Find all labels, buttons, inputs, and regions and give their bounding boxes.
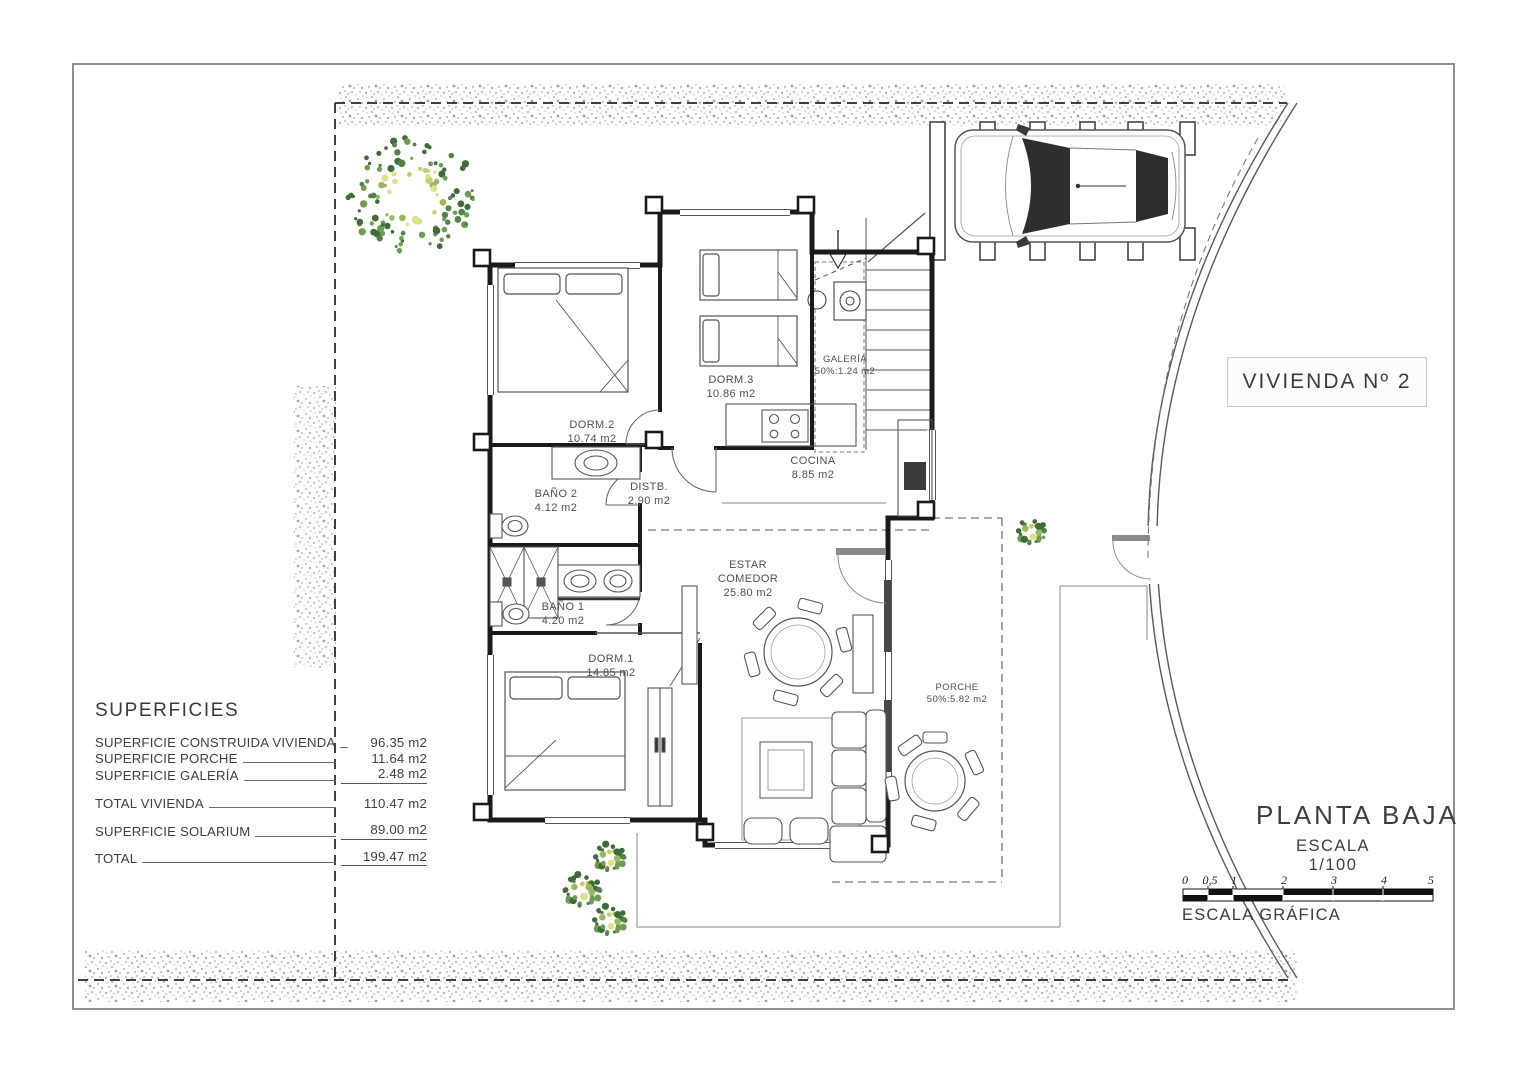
superficies-value: 199.47 m2 <box>341 849 427 867</box>
vivienda-title: VIVIENDA Nº 2 <box>1242 370 1411 394</box>
superficies-row: SUPERFICIE SOLARIUM 89.00 m2 <box>95 822 427 840</box>
room-label-distb-area: 2.90 m2 <box>628 495 671 507</box>
room-label-dorm3-area: 10.86 m2 <box>706 388 755 400</box>
superficies-label: SUPERFICIE GALERÍA <box>95 768 239 784</box>
room-label-dorm1-name: DORM.1 <box>588 653 633 665</box>
room-label-dorm1-area: 14.85 m2 <box>586 667 635 679</box>
superficies-label: SUPERFICIE CONSTRUIDA VIVIENDA <box>95 735 335 751</box>
room-label-estar-area: 25.80 m2 <box>723 587 772 599</box>
vivienda-title-box: VIVIENDA Nº 2 <box>1227 357 1427 407</box>
superficies-value: 11.64 m2 <box>341 751 427 767</box>
gate-opening <box>1133 526 1165 584</box>
dining-table-icon <box>744 598 853 707</box>
superficies-row: SUPERFICIE CONSTRUIDA VIVIENDA 96.35 m2 <box>95 735 427 751</box>
bush-icon <box>593 841 626 873</box>
beds-dorm3 <box>700 250 797 366</box>
scale-tick-3: 3 <box>1330 873 1337 887</box>
leader-line <box>209 807 336 808</box>
kitchen-sink-icon <box>904 462 926 490</box>
wardrobe-dorm1 <box>648 688 672 806</box>
room-label-cocina-name: COCINA <box>790 455 835 467</box>
car-icon <box>955 124 1185 248</box>
leader-line <box>340 747 348 748</box>
superficies-row: SUPERFICIE GALERÍA 2.48 m2 <box>95 766 427 784</box>
superficies-row: SUPERFICIE PORCHE 11.64 m2 <box>95 751 427 767</box>
entry-door <box>836 548 886 603</box>
room-label-bano1-area: 4.20 m2 <box>542 615 585 627</box>
room-label-estar-line1: ESTAR <box>729 559 767 571</box>
tree-icon <box>346 135 475 253</box>
hedge-left <box>294 386 336 668</box>
room-labels: DORM.2 10.74 m2 DORM.3 10.86 m2 GALERÍA … <box>535 354 988 705</box>
room-label-cocina-area: 8.85 m2 <box>792 469 835 481</box>
room-label-dorm3-name: DORM.3 <box>708 374 753 386</box>
superficies-row: TOTAL VIVIENDA 110.47 m2 <box>95 796 427 812</box>
bed-dorm2 <box>498 268 628 392</box>
room-label-galeria-name: GALERÍA <box>823 354 867 365</box>
porch-table-icon <box>885 732 985 831</box>
superficies-row: TOTAL 199.47 m2 <box>95 849 427 867</box>
bush-icon <box>562 871 602 908</box>
superficies-value: 110.47 m2 <box>341 796 427 812</box>
scale-tick-2: 2 <box>1281 873 1287 887</box>
superficies-label: SUPERFICIE PORCHE <box>95 751 238 767</box>
room-label-estar-line2: COMEDOR <box>718 573 778 585</box>
leader-line <box>243 762 336 763</box>
leader-line <box>142 862 336 863</box>
hedge-bottom <box>85 950 1297 1002</box>
superficies-value: 89.00 m2 <box>341 822 427 840</box>
planta-title: PLANTA BAJA <box>1250 800 1465 831</box>
scale-tick-4: 4 <box>1381 873 1387 887</box>
room-label-porche-name: PORCHE <box>935 682 978 693</box>
room-label-porche-area: 50%:5.82 m2 <box>927 694 987 705</box>
bush-icon <box>1016 519 1047 545</box>
room-label-bano1-name: BAÑO 1 <box>542 600 585 613</box>
bush-icon <box>592 903 627 936</box>
superficies-value: 96.35 m2 <box>353 735 427 751</box>
hedge-top <box>337 84 1285 126</box>
superficies-table: SUPERFICIES SUPERFICIE CONSTRUIDA VIVIEN… <box>95 700 427 866</box>
stairs <box>815 213 930 450</box>
floor-plan-sheet: DORM.2 10.74 m2 DORM.3 10.86 m2 GALERÍA … <box>0 0 1529 1080</box>
superficies-label: TOTAL VIVIENDA <box>95 796 204 812</box>
tv-unit <box>682 586 697 684</box>
washer-icon <box>808 282 866 320</box>
room-label-bano2-name: BAÑO 2 <box>535 487 578 500</box>
scale-tick-05: 0,5 <box>1203 873 1218 887</box>
room-label-galeria-area: 50%:1.24 m2 <box>815 366 875 377</box>
leader-line <box>255 836 336 837</box>
scale-bar: 0 0,5 1 2 3 4 5 <box>1182 873 1434 901</box>
superficies-label: SUPERFICIE SOLARIUM <box>95 824 250 840</box>
leader-line <box>244 780 336 781</box>
room-label-bano2-area: 4.12 m2 <box>535 502 578 514</box>
scale-tick-0: 0 <box>1182 873 1188 887</box>
sideboard <box>853 615 873 693</box>
escala-subtitle: ESCALA 1/100 <box>1270 837 1396 875</box>
superficies-value: 2.48 m2 <box>341 766 427 784</box>
room-label-dorm2-name: DORM.2 <box>569 419 614 431</box>
escala-grafica-label: ESCALA GRÁFICA <box>1182 906 1341 925</box>
superficies-label: TOTAL <box>95 851 137 867</box>
scale-tick-1: 1 <box>1231 873 1237 887</box>
room-label-distb-name: DISTB. <box>630 481 668 493</box>
room-label-dorm2-area: 10.74 m2 <box>567 433 616 445</box>
bed-dorm1 <box>505 672 625 790</box>
superficies-heading: SUPERFICIES <box>95 700 427 722</box>
scale-tick-5: 5 <box>1428 873 1434 887</box>
